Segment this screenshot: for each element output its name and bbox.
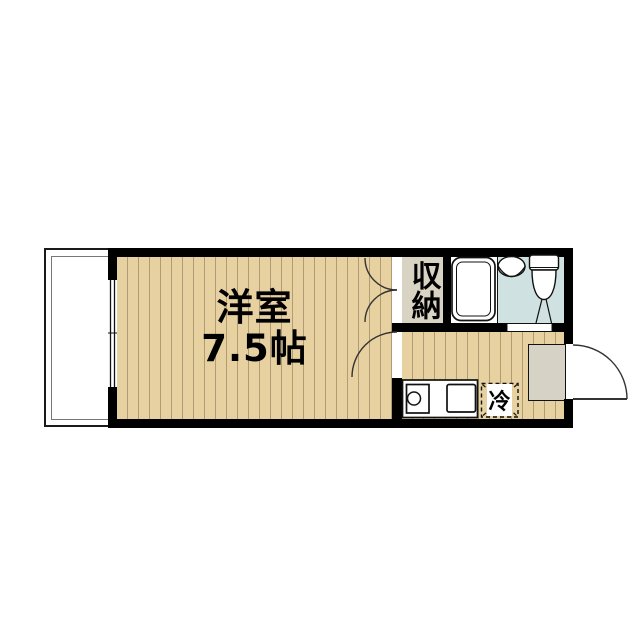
bathtub-area-floor (451, 257, 497, 323)
main-room-label-line2: 7.5帖 (117, 328, 392, 369)
bathroom-floor (497, 257, 565, 323)
floorplan-canvas: 洋室 7.5帖 収納 冷 (0, 0, 640, 640)
closet-label: 収納 (402, 256, 443, 324)
wall-bottom (108, 419, 573, 428)
wall-mid-horizontal (392, 323, 573, 332)
main-room-label-line1: 洋室 (117, 287, 392, 328)
entry-genkan-tile (528, 344, 566, 401)
entry-door-arc (573, 345, 627, 399)
wall-left-lower (108, 387, 117, 428)
fridge-label-text: 冷 (487, 384, 511, 416)
fridge-label: 冷 (481, 383, 518, 417)
wall-right-lower (564, 399, 573, 428)
wall-left-upper (108, 248, 117, 280)
main-room-label: 洋室 7.5帖 (117, 287, 392, 369)
wall-closet-bath (443, 257, 451, 323)
balcony-inner-rail (51, 256, 110, 420)
wall-top (108, 248, 573, 257)
wall-mid-vertical (392, 378, 402, 419)
